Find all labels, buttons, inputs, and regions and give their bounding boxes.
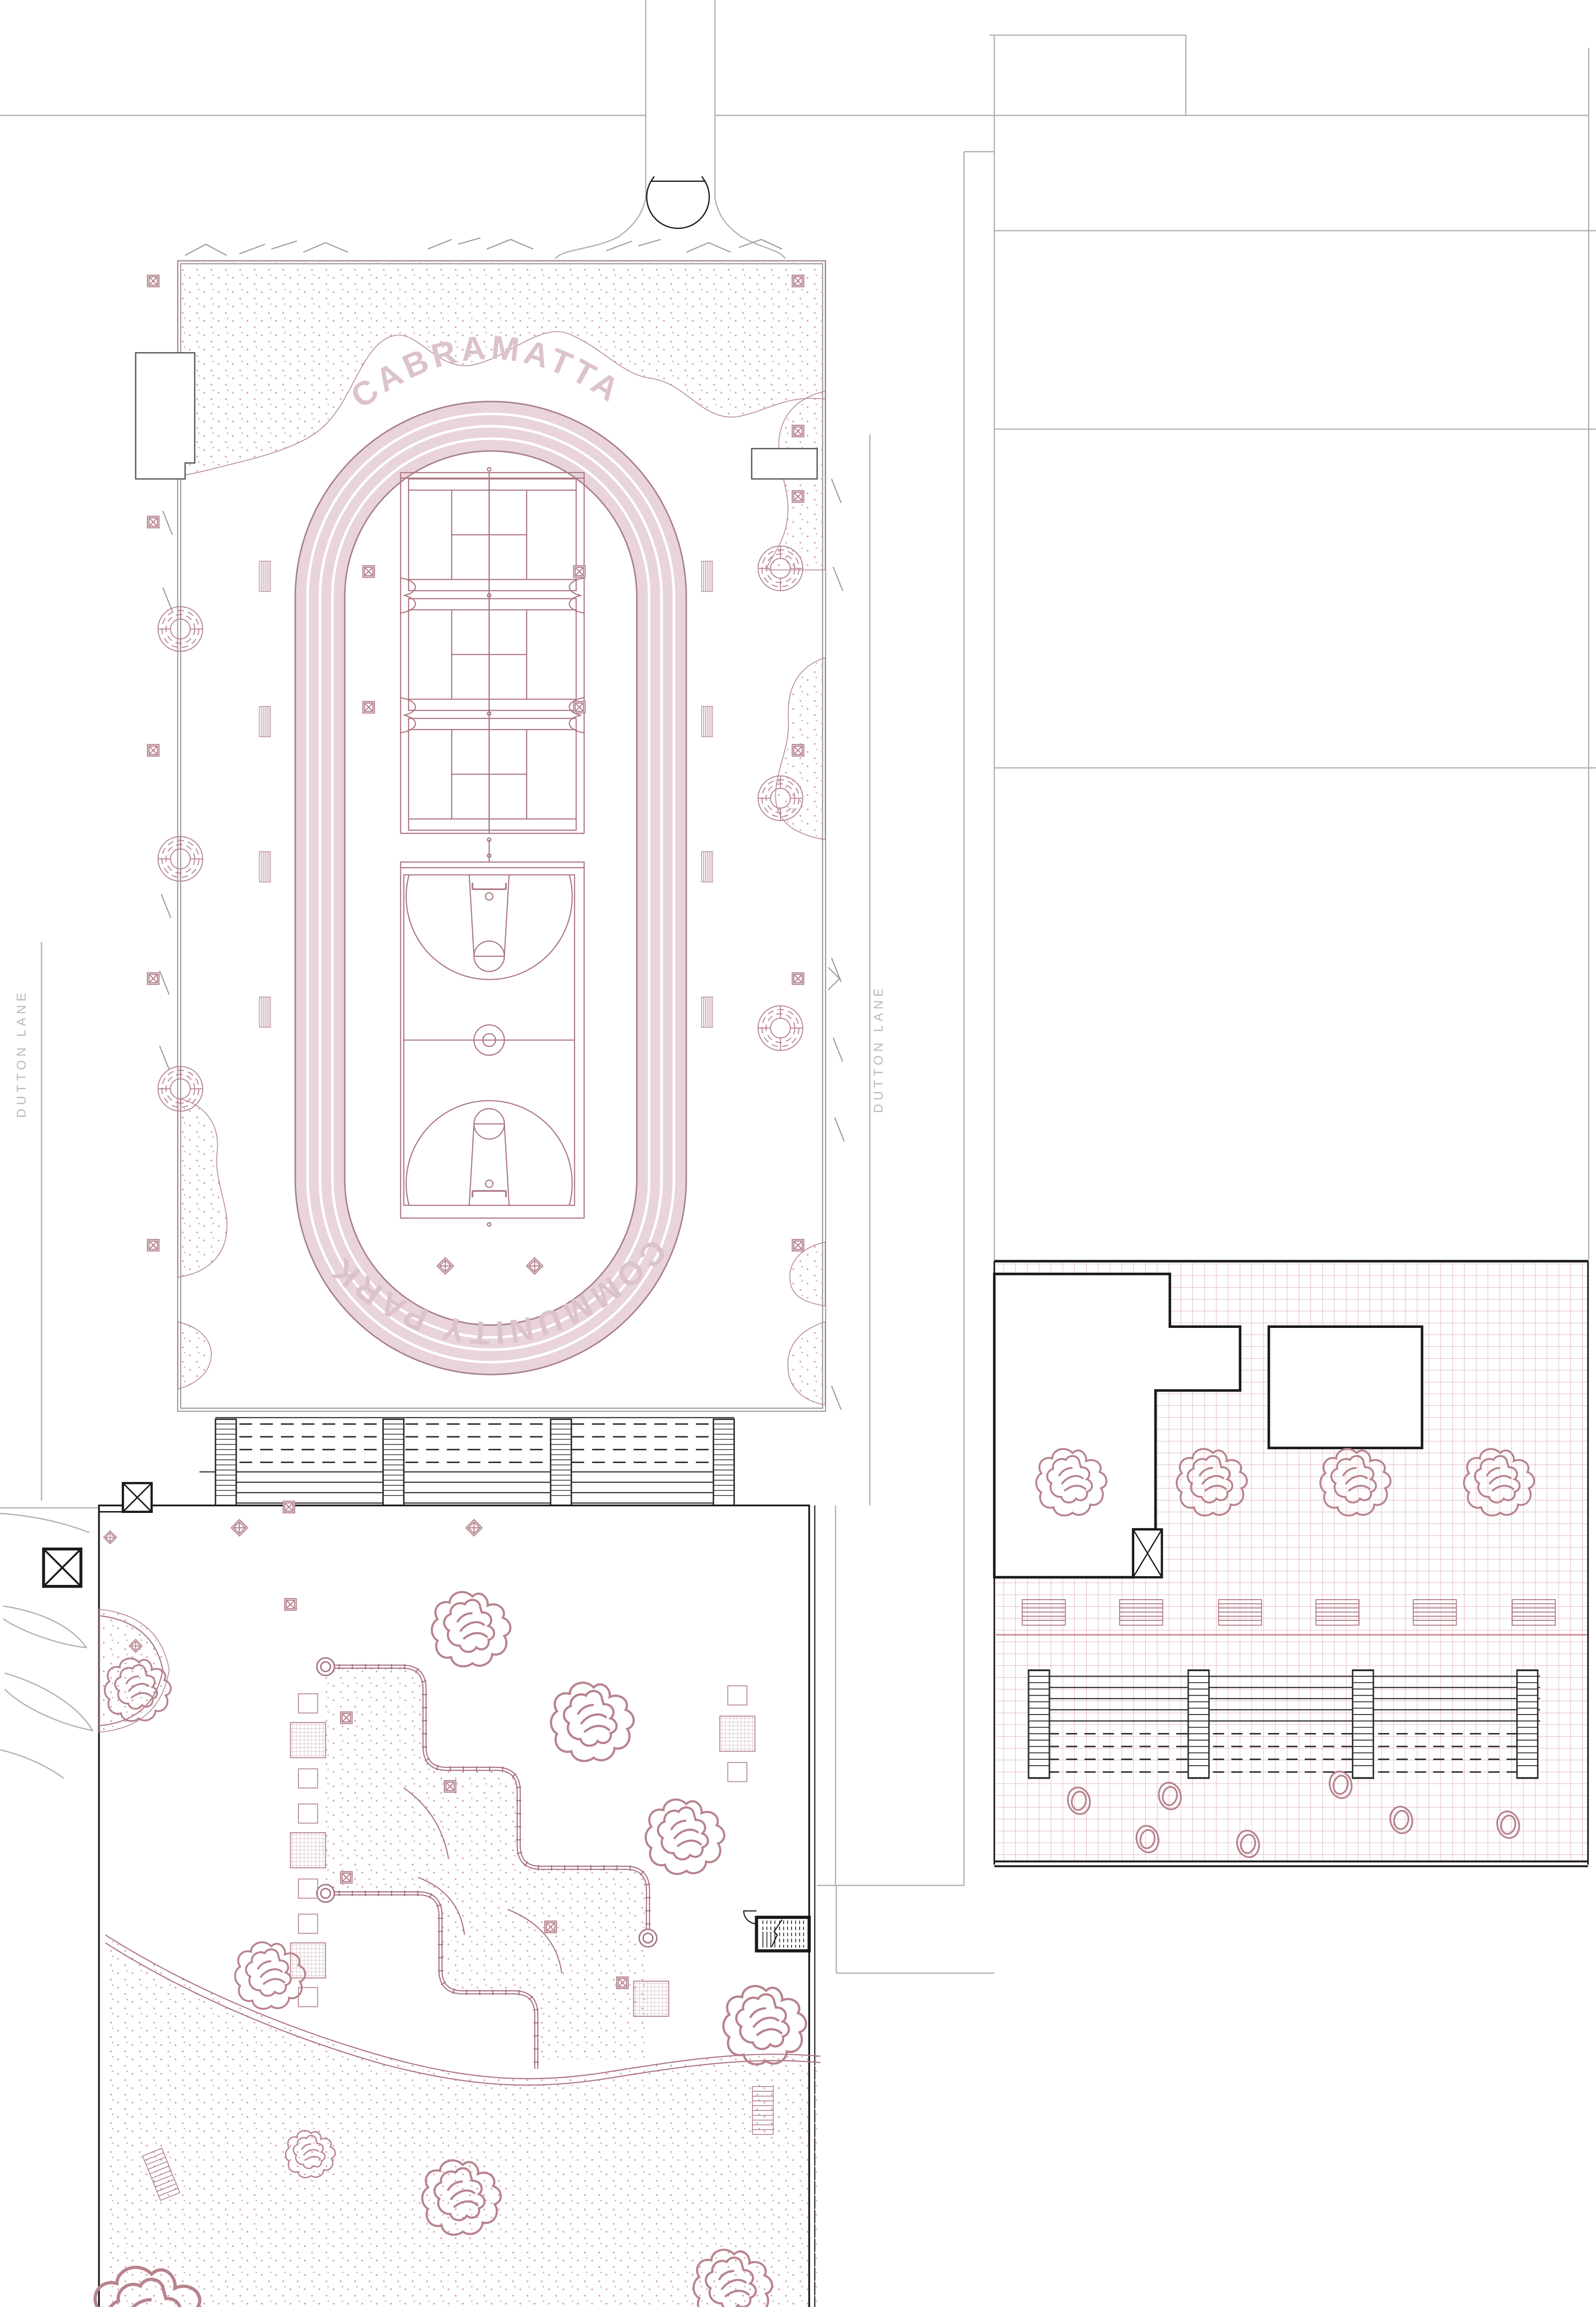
fitness-equipment-east (634, 1686, 755, 2016)
plaza-building-lift (1133, 1530, 1162, 1578)
plaza (995, 1261, 1588, 1866)
grandstand-north (200, 1417, 734, 1536)
east-building (752, 448, 817, 479)
street-label-west: DUTTON LANE (14, 989, 28, 1118)
athletics-track (295, 401, 686, 1375)
site-plan-canvas: CABRAMATTA COMMUNITY PARK (0, 0, 1596, 2307)
turning-circle (647, 176, 709, 228)
plaza-building-east (1269, 1327, 1422, 1448)
street-label-east: DUTTON LANE (871, 985, 885, 1113)
stair-entry-east (744, 1911, 809, 1951)
fitness-equipment-west (291, 1694, 326, 2007)
west-building (136, 353, 195, 479)
